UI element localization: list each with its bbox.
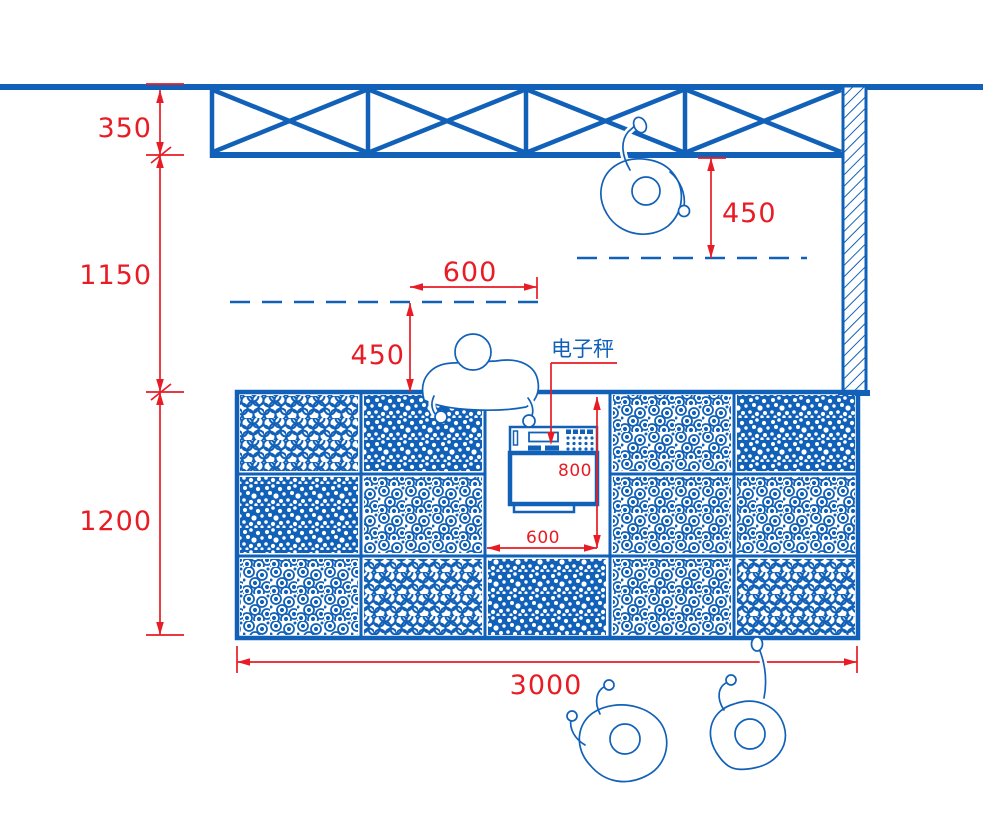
dim-450-shelf-text: 450 <box>722 198 777 229</box>
person-hand <box>523 415 535 427</box>
bin-produce <box>613 477 731 553</box>
person-head <box>632 177 660 205</box>
wall-column-hatch <box>843 86 866 392</box>
bin-produce <box>737 559 855 635</box>
bin-produce <box>613 559 731 635</box>
person-hand <box>726 675 736 685</box>
dim-450-counter-text: 450 <box>350 340 405 371</box>
dim-600-queue-text: 600 <box>443 257 498 288</box>
bin-produce <box>737 395 855 471</box>
back-wall <box>0 84 983 90</box>
bin-produce <box>240 395 358 471</box>
bin-produce <box>488 559 606 635</box>
bin-produce <box>364 477 482 553</box>
dim-1200-text: 1200 <box>79 506 152 537</box>
dim-1150-text: 1150 <box>79 260 152 291</box>
wall-column <box>838 86 870 396</box>
person-hand <box>435 411 447 423</box>
scale-button <box>545 446 559 451</box>
person-hand <box>604 680 614 690</box>
person-hand <box>679 206 690 217</box>
scale-button <box>528 446 541 451</box>
floor-plan-canvas: 350 1150 1200 450 <box>0 0 983 824</box>
person-head <box>735 719 765 749</box>
floor-plan: 350 1150 1200 450 <box>0 0 983 824</box>
bin-produce <box>613 395 731 471</box>
dim-350-text: 350 <box>97 113 152 144</box>
bin-produce <box>737 477 855 553</box>
person-hand <box>752 637 763 651</box>
dim-3000-text: 3000 <box>510 670 583 701</box>
scale-label: 电子秤 <box>551 337 614 361</box>
person-head <box>610 724 640 754</box>
person-hand <box>567 711 577 721</box>
bin-produce <box>240 477 358 553</box>
bin-produce <box>240 559 358 635</box>
person-head <box>455 334 491 370</box>
dim-800-slot-text: 800 <box>558 461 592 481</box>
bin-produce <box>364 559 482 635</box>
dim-600-slot-text: 600 <box>526 528 560 548</box>
